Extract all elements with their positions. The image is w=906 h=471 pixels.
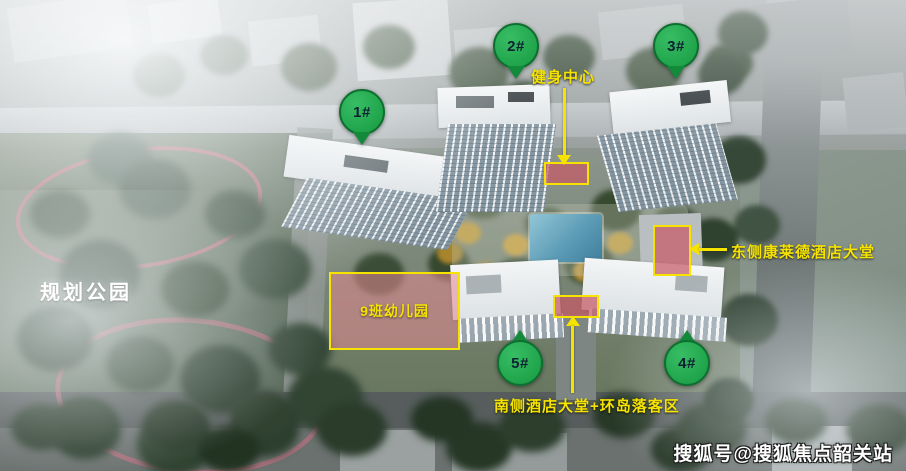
east-lobby-arrow-icon: [689, 243, 699, 255]
pin-building-4: 4#: [664, 330, 710, 386]
east-lobby-leader-line: [699, 248, 727, 251]
pin-pointer-icon: [667, 66, 685, 79]
pin-tower-1-label: 1#: [339, 89, 385, 135]
fitness-center-arrow-icon: [557, 155, 571, 165]
watermark-text: 搜狐号@搜狐焦点韶关站: [673, 439, 893, 466]
park-label: 规划公园: [40, 276, 132, 305]
fitness-center-label: 健身中心: [531, 66, 595, 87]
roof-vent: [466, 275, 502, 295]
tree-cluster-park: [30, 190, 90, 238]
east-lobby-highlight: [653, 225, 691, 276]
south-lobby-highlight: [553, 295, 599, 318]
tower-2-facade: [436, 124, 556, 212]
neighbor-building: [352, 0, 452, 81]
neighbor-building: [752, 0, 853, 63]
tower-3-building: [599, 73, 747, 214]
neighbor-building: [248, 14, 322, 66]
aerial-site-plan: 健身中心 东侧康莱德酒店大堂 南侧酒店大堂+环岛落客区 9班幼儿园 规划公园 1…: [0, 0, 906, 471]
pin-tower-3: 3#: [653, 23, 699, 79]
pin-pointer-icon: [507, 66, 525, 79]
tower-3-facade: [597, 123, 738, 212]
south-lobby-label: 南侧酒店大堂+环岛落客区: [494, 395, 680, 416]
pin-pointer-icon: [353, 132, 371, 145]
neighbor-building: [452, 433, 567, 471]
neighbor-building: [340, 430, 435, 471]
east-lobby-label: 东侧康莱德酒店大堂: [731, 241, 875, 262]
pin-building-5-label: 5#: [497, 340, 543, 386]
kindergarten-highlight: 9班幼儿园: [329, 272, 460, 350]
neighbor-building: [842, 72, 906, 133]
kindergarten-label: 9班幼儿园: [360, 301, 429, 321]
pin-tower-2-label: 2#: [493, 23, 539, 69]
fitness-center-highlight: [544, 162, 589, 185]
tower-2-roof: [437, 84, 550, 128]
roof-vent: [508, 92, 534, 102]
tree-cluster-bottom: [55, 398, 113, 440]
pin-building-5: 5#: [497, 330, 543, 386]
tree-cluster-top: [200, 35, 248, 75]
pin-tower-2: 2#: [493, 23, 539, 79]
south-lobby-arrow-icon: [566, 316, 580, 326]
tower-2-building: [438, 82, 563, 214]
fitness-center-leader-line: [563, 88, 566, 156]
south-lobby-leader-line: [571, 326, 574, 393]
roof-vent: [675, 274, 708, 292]
pin-building-4-label: 4#: [664, 340, 710, 386]
roof-vent: [456, 96, 494, 108]
pin-tower-1: 1#: [339, 89, 385, 145]
pin-tower-3-label: 3#: [653, 23, 699, 69]
